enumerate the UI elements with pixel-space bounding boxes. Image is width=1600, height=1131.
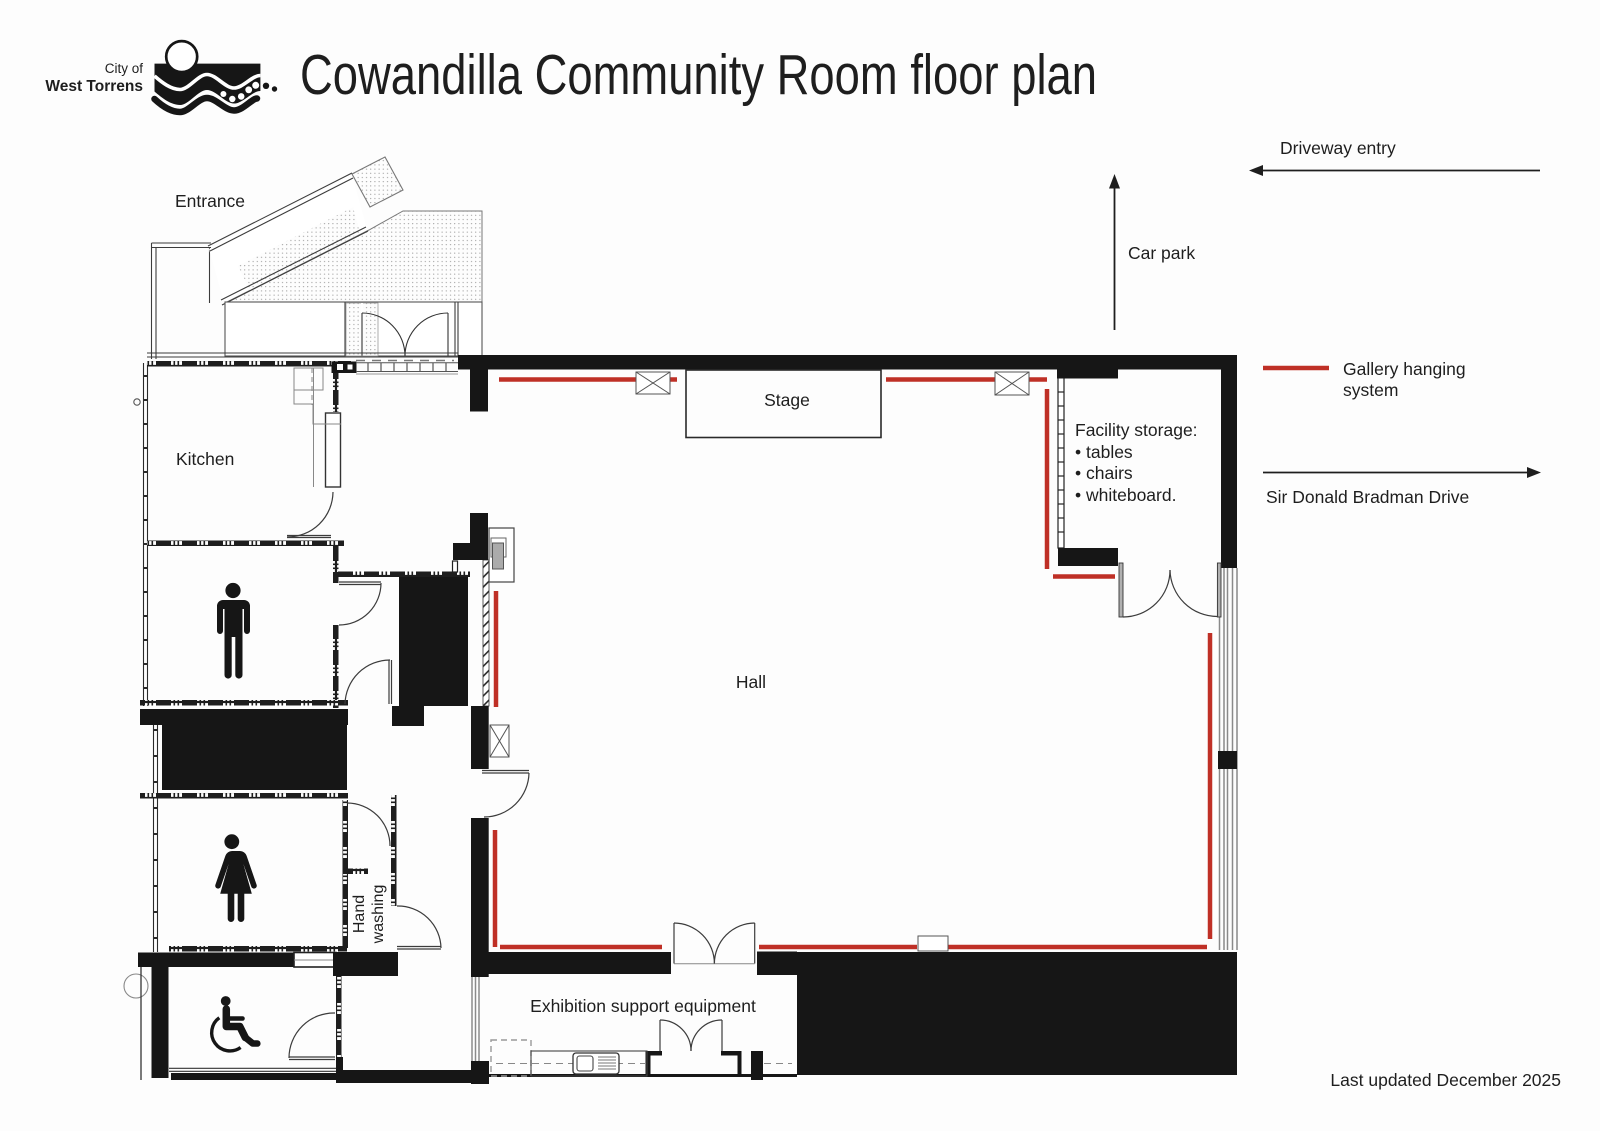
svg-text:Last updated December 2025: Last updated December 2025 bbox=[1330, 1070, 1561, 1090]
svg-text:Facility storage:: Facility storage: bbox=[1075, 420, 1198, 440]
svg-text:West Torrens: West Torrens bbox=[45, 78, 143, 95]
svg-text:system: system bbox=[1343, 380, 1398, 400]
svg-text:Stage: Stage bbox=[764, 390, 810, 410]
svg-text:Exhibition support equipment: Exhibition support equipment bbox=[530, 996, 756, 1016]
svg-text:Kitchen: Kitchen bbox=[176, 449, 234, 469]
svg-text:• chairs: • chairs bbox=[1075, 463, 1133, 483]
svg-text:washing: washing bbox=[370, 885, 387, 945]
svg-text:Sir Donald Bradman Drive: Sir Donald Bradman Drive bbox=[1266, 487, 1469, 507]
svg-text:Entrance: Entrance bbox=[175, 191, 245, 211]
svg-text:Hand: Hand bbox=[351, 895, 368, 933]
svg-text:Car park: Car park bbox=[1128, 243, 1195, 263]
svg-text:• whiteboard.: • whiteboard. bbox=[1075, 485, 1176, 505]
svg-text:• tables: • tables bbox=[1075, 442, 1133, 462]
svg-text:Driveway entry: Driveway entry bbox=[1280, 138, 1396, 158]
svg-text:Gallery hanging: Gallery hanging bbox=[1343, 359, 1466, 379]
svg-text:Cowandilla Community Room floo: Cowandilla Community Room floor plan bbox=[300, 43, 1097, 107]
svg-text:City of: City of bbox=[105, 61, 144, 76]
svg-text:Hall: Hall bbox=[736, 672, 766, 692]
